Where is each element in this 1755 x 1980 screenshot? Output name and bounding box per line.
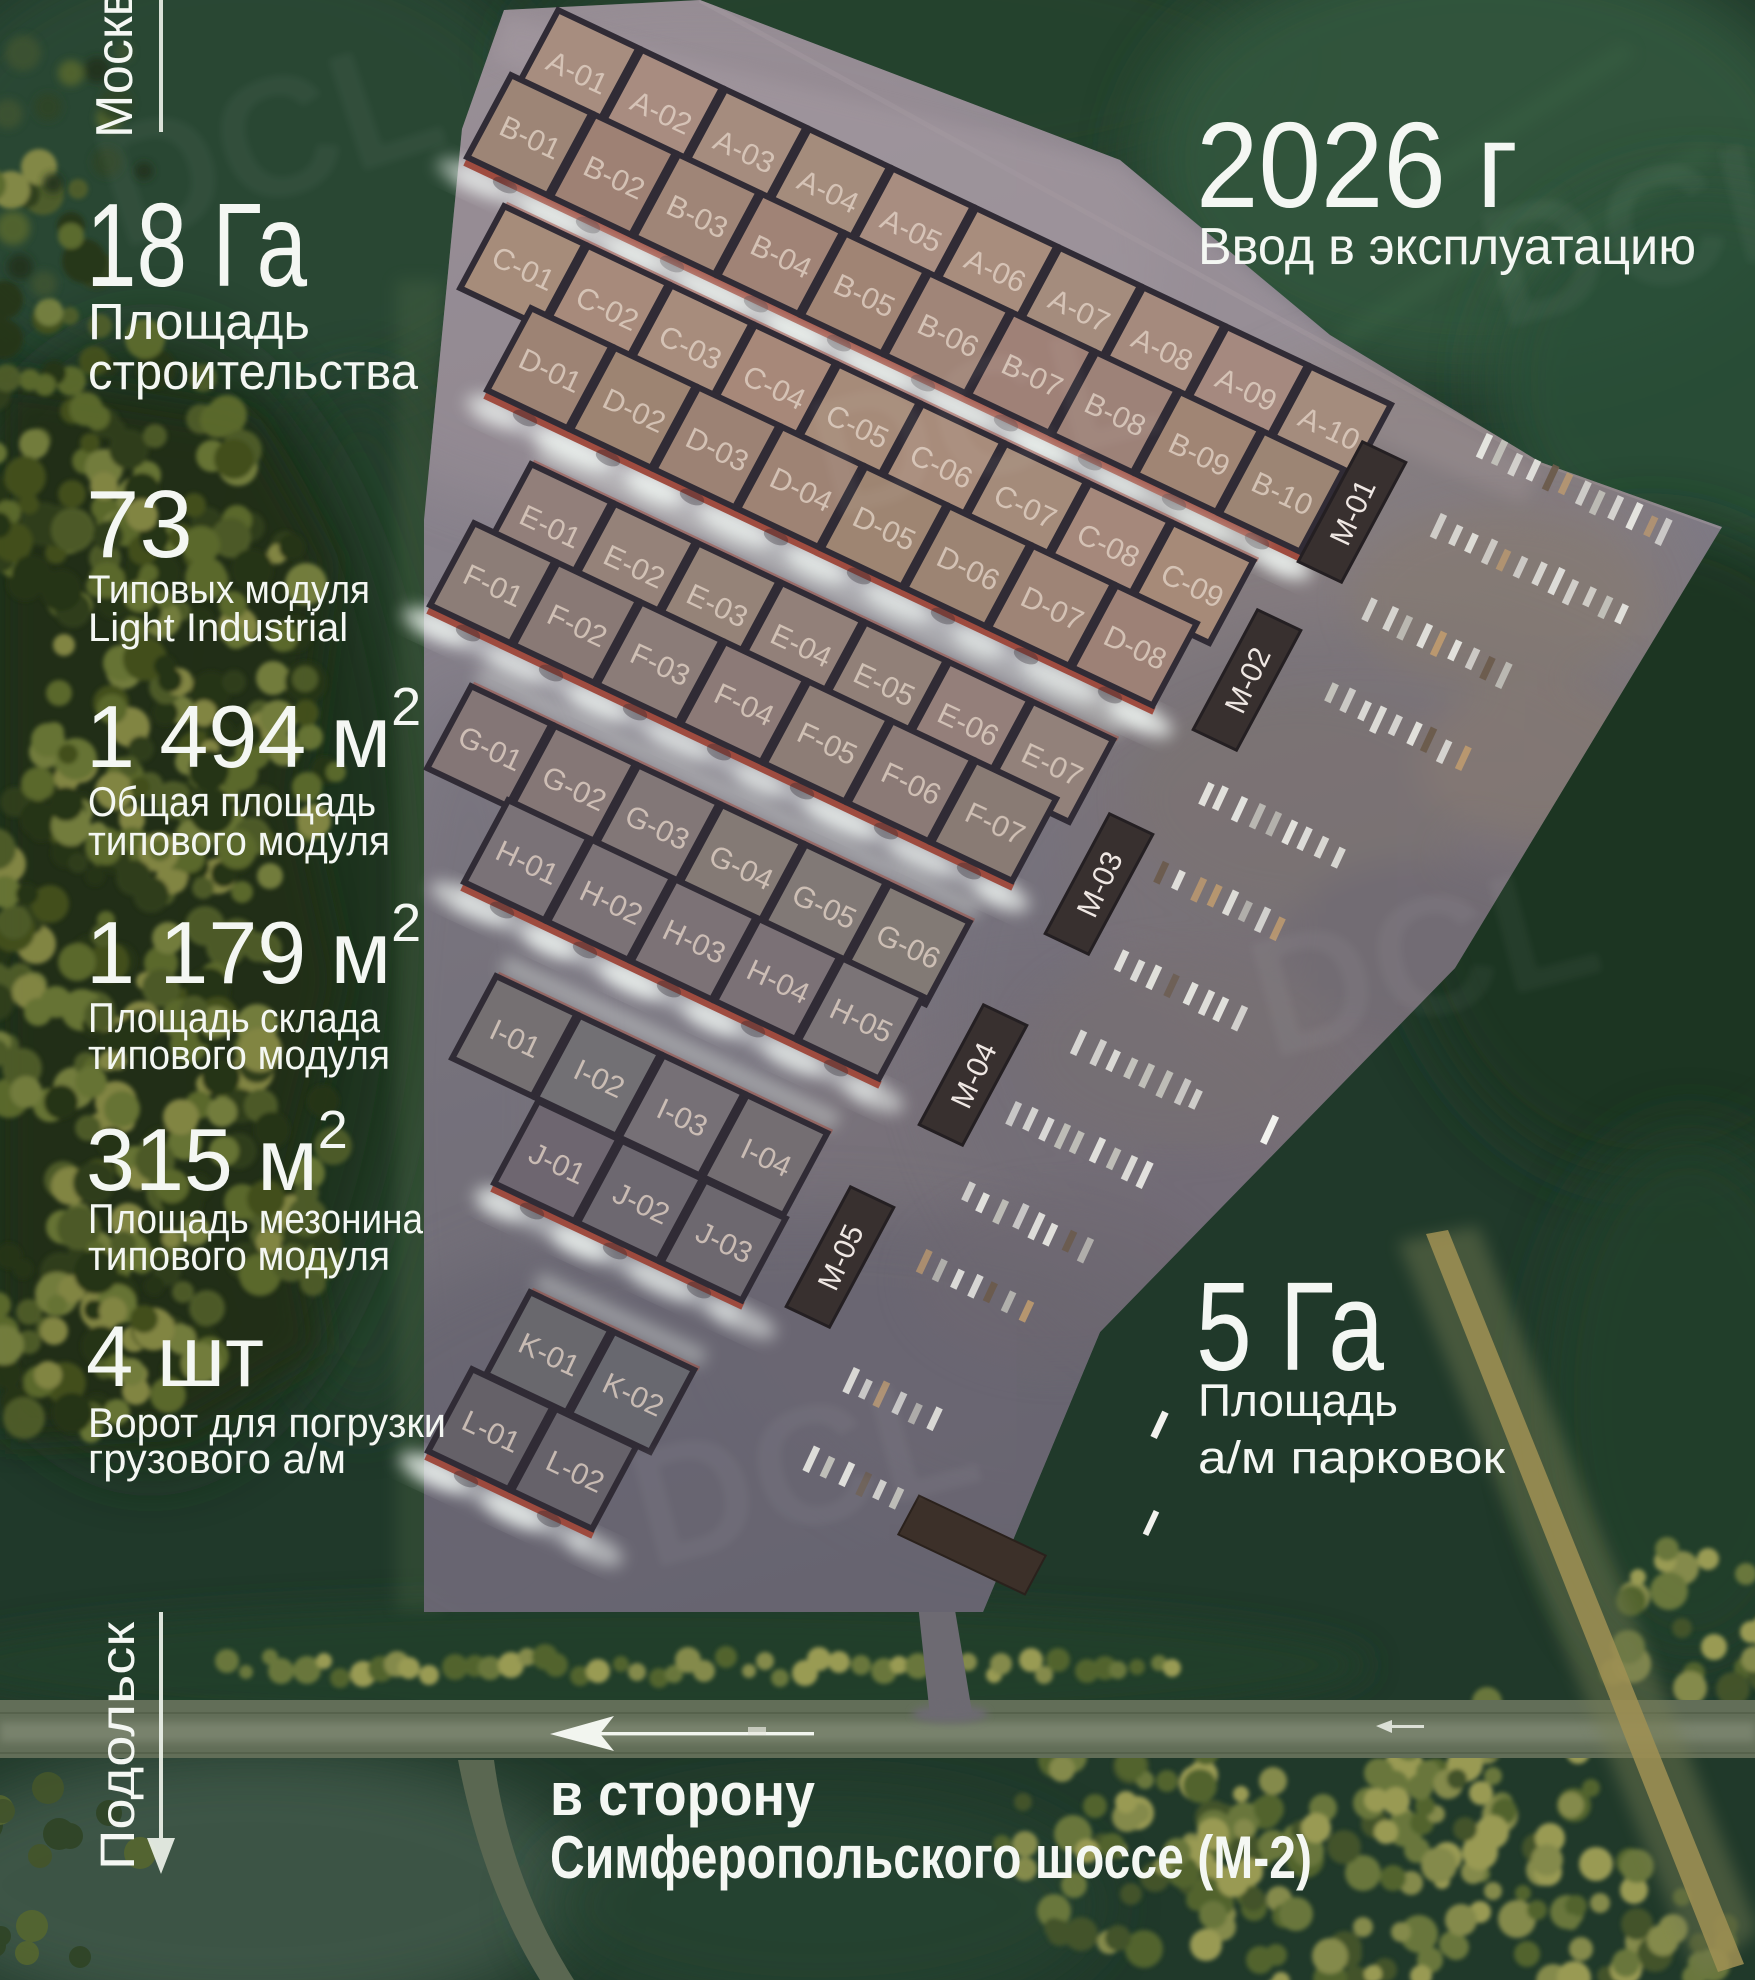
svg-text:в сторону: в сторону xyxy=(550,1761,816,1828)
svg-text:типового модуля: типового модуля xyxy=(88,1031,390,1078)
svg-text:а/м парковок: а/м парковок xyxy=(1198,1432,1505,1483)
svg-text:315 м2: 315 м2 xyxy=(86,1100,348,1209)
svg-text:Подольск: Подольск xyxy=(92,1621,145,1870)
svg-text:2026 г: 2026 г xyxy=(1196,97,1518,233)
svg-text:1 494 м2: 1 494 м2 xyxy=(86,677,421,786)
svg-text:4 шт: 4 шт xyxy=(86,1309,264,1405)
svg-text:Площадь: Площадь xyxy=(1198,1375,1398,1426)
svg-text:типового модуля: типового модуля xyxy=(88,817,390,864)
svg-text:типового модуля: типового модуля xyxy=(88,1232,390,1279)
svg-text:строительства: строительства xyxy=(88,343,419,400)
svg-text:Ввод в эксплуатацию: Ввод в эксплуатацию xyxy=(1198,218,1696,276)
svg-text:Площадь: Площадь xyxy=(88,293,310,350)
svg-text:73: 73 xyxy=(86,471,193,578)
svg-text:грузового а/м: грузового а/м xyxy=(88,1435,346,1482)
svg-text:Симферопольского шоссе (М-2): Симферопольского шоссе (М-2) xyxy=(550,1824,1312,1891)
svg-text:Light Industrial: Light Industrial xyxy=(88,606,348,650)
svg-text:1 179 м2: 1 179 м2 xyxy=(86,893,421,1002)
svg-text:Москва: Москва xyxy=(86,0,144,138)
